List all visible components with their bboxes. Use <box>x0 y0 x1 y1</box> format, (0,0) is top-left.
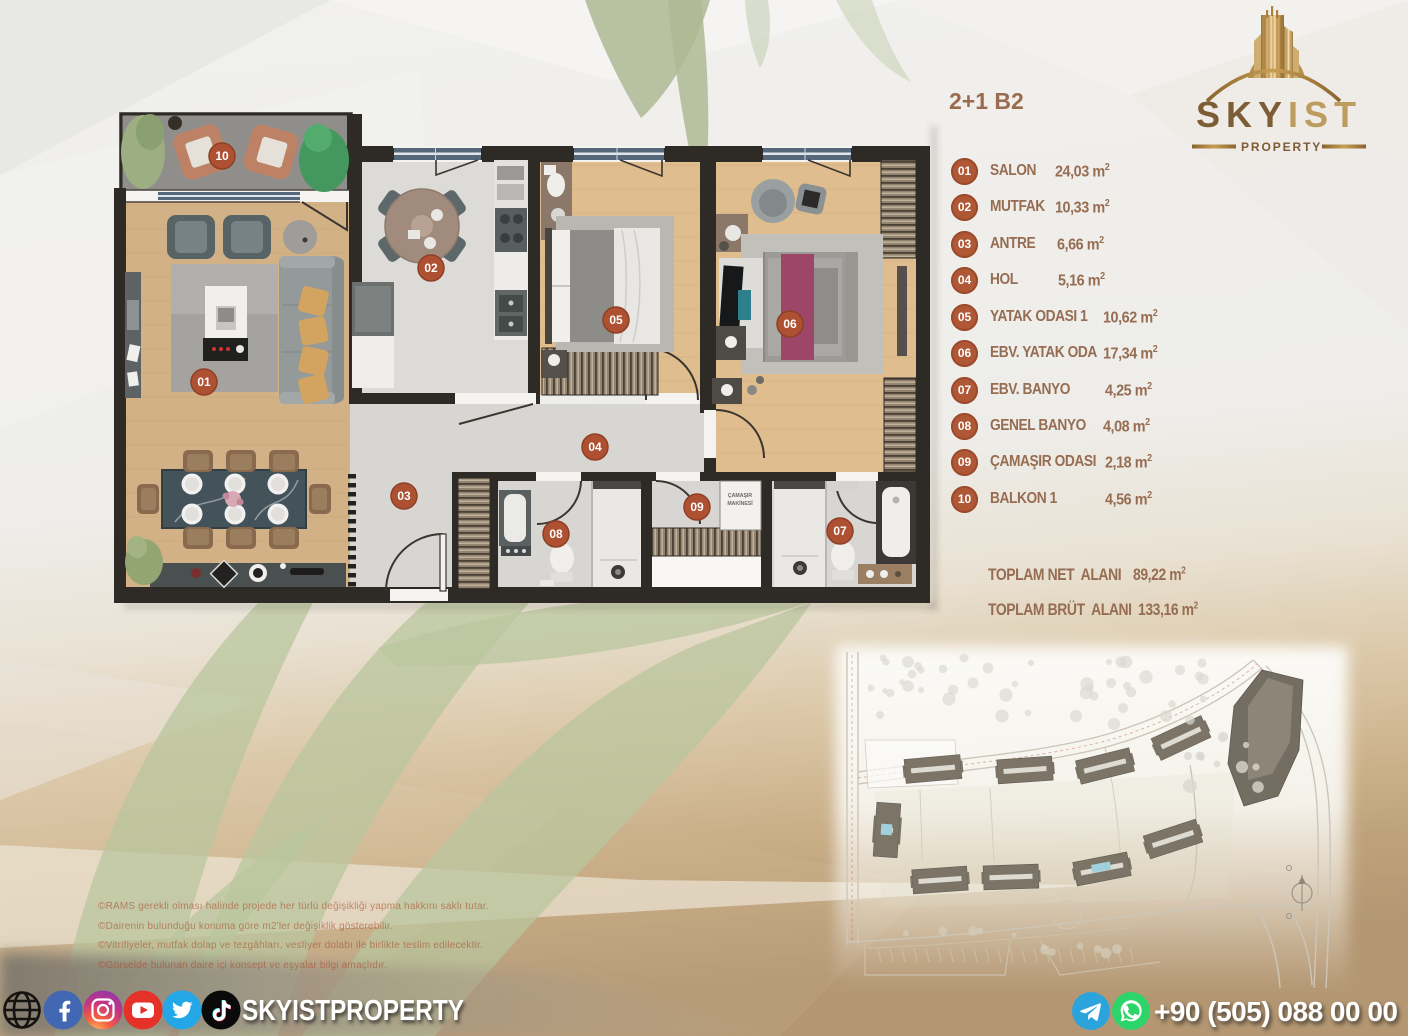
svg-text:07: 07 <box>833 524 847 538</box>
svg-text:08: 08 <box>549 527 563 541</box>
svg-text:01: 01 <box>197 375 211 389</box>
svg-text:02: 02 <box>424 261 438 275</box>
svg-text:04: 04 <box>588 440 602 454</box>
svg-text:MAKİNESİ: MAKİNESİ <box>727 500 753 507</box>
svg-text:09: 09 <box>690 500 704 514</box>
svg-text:05: 05 <box>609 313 623 327</box>
svg-text:ÇAMAŞIR: ÇAMAŞIR <box>728 493 752 499</box>
svg-text:10: 10 <box>215 149 229 163</box>
svg-text:06: 06 <box>783 317 797 331</box>
svg-text:03: 03 <box>397 489 411 503</box>
